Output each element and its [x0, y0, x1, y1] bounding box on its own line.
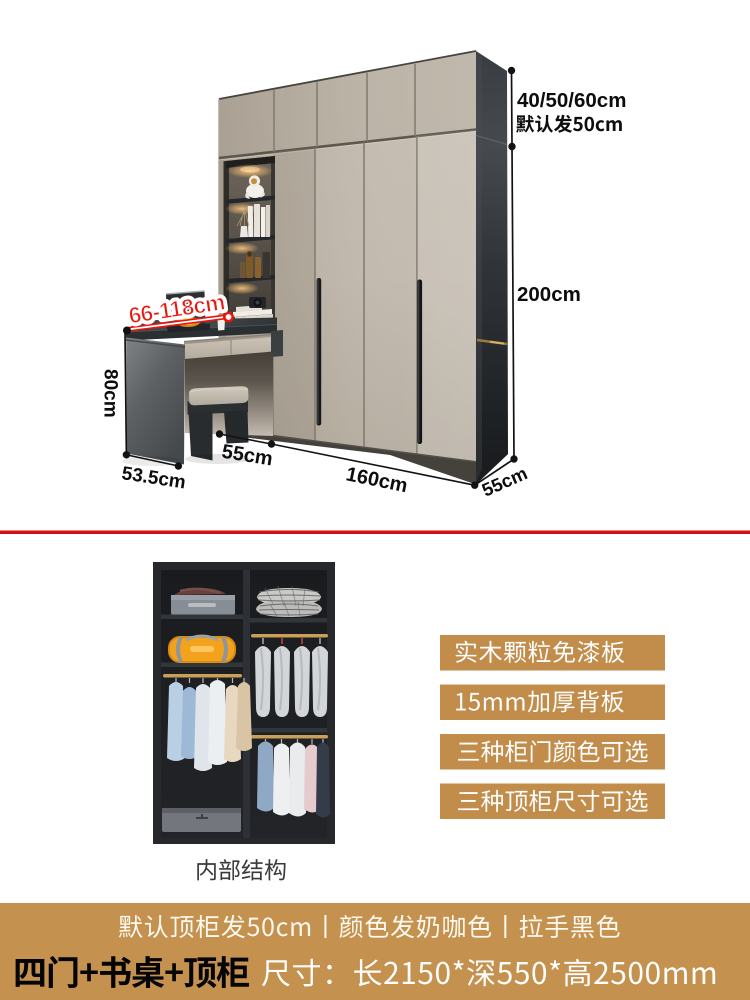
svg-text:200cm: 200cm — [517, 283, 581, 306]
svg-text:40/50/60cm: 40/50/60cm — [517, 89, 626, 112]
svg-text:80cm: 80cm — [100, 369, 121, 418]
